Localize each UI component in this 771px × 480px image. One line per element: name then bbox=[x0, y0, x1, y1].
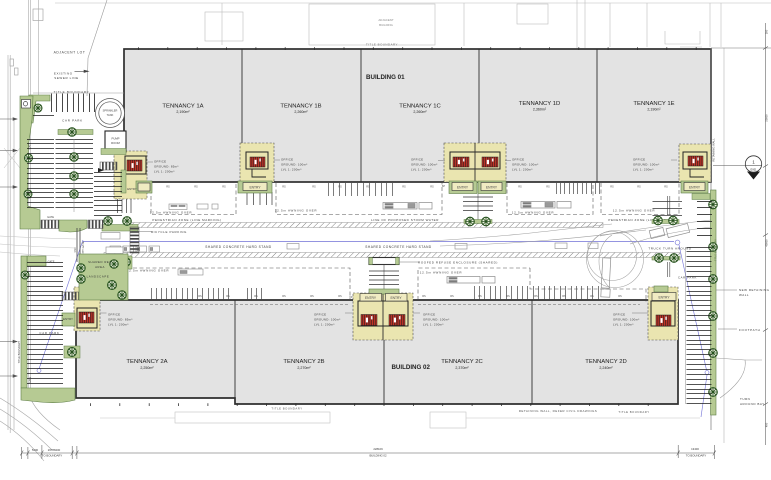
svg-text:LVL 1: 200m²: LVL 1: 200m² bbox=[154, 170, 175, 174]
svg-text:TITLE BOUNDARY: TITLE BOUNDARY bbox=[366, 43, 398, 47]
svg-text:RS: RS bbox=[282, 185, 286, 189]
svg-text:GROUND: 100m²: GROUND: 100m² bbox=[633, 163, 660, 167]
svg-text:ENTRY: ENTRY bbox=[63, 317, 73, 321]
svg-text:WALL: WALL bbox=[739, 293, 749, 297]
svg-text:RS: RS bbox=[338, 185, 342, 189]
svg-text:ADJACENT: ADJACENT bbox=[378, 18, 393, 22]
svg-text:EX01: EX01 bbox=[750, 169, 757, 172]
svg-text:GROUND: 100m²: GROUND: 100m² bbox=[411, 163, 438, 167]
svg-text:2,190m²: 2,190m² bbox=[647, 107, 661, 111]
svg-text:TO BOUNDARY: TO BOUNDARY bbox=[42, 454, 63, 458]
svg-text:ENTRY: ENTRY bbox=[390, 296, 402, 300]
svg-text:FOOTPATH: FOOTPATH bbox=[739, 328, 761, 332]
svg-text:GROUND: 100m²: GROUND: 100m² bbox=[314, 318, 341, 322]
svg-text:AREA: AREA bbox=[95, 265, 105, 269]
svg-text:OFFICE: OFFICE bbox=[108, 313, 120, 317]
svg-text:TENNANCY 1D: TENNANCY 1D bbox=[519, 101, 560, 107]
svg-text:50000: 50000 bbox=[765, 114, 769, 122]
svg-text:BUILDING 01: BUILDING 01 bbox=[366, 74, 405, 81]
svg-text:ENTRY: ENTRY bbox=[658, 296, 670, 300]
svg-text:6P: 6P bbox=[442, 184, 445, 188]
svg-text:500: 500 bbox=[765, 29, 769, 34]
svg-text:TITLE BOUNDARY: TITLE BOUNDARY bbox=[17, 341, 21, 364]
svg-text:TENNANCY 2C: TENNANCY 2C bbox=[441, 359, 483, 365]
svg-text:ENTRY: ENTRY bbox=[365, 296, 377, 300]
svg-text:RETAINING WALL, REFER CIVIL DR: RETAINING WALL, REFER CIVIL DRAWINGS bbox=[519, 409, 598, 413]
svg-text:RS: RS bbox=[222, 185, 226, 189]
svg-text:GATE: GATE bbox=[29, 376, 32, 383]
svg-text:RS: RS bbox=[664, 185, 668, 189]
svg-text:RS: RS bbox=[312, 185, 316, 189]
svg-text:PEDESTRIAN ZONE (LINE MARKING): PEDESTRIAN ZONE (LINE MARKING) bbox=[152, 218, 221, 222]
svg-text:LVL 1: 200m²: LVL 1: 200m² bbox=[281, 168, 302, 172]
svg-text:TENNANCY 1C: TENNANCY 1C bbox=[399, 103, 441, 109]
svg-text:RS: RS bbox=[450, 294, 454, 298]
svg-text:OFFICE: OFFICE bbox=[613, 313, 625, 317]
svg-text:GROUND: 85m²: GROUND: 85m² bbox=[108, 318, 133, 322]
svg-text:12.5m AWNING OVER: 12.5m AWNING OVER bbox=[613, 209, 656, 213]
svg-text:RS: RS bbox=[282, 294, 286, 298]
svg-text:TITLE BOUNDARY: TITLE BOUNDARY bbox=[54, 90, 90, 94]
svg-text:RS: RS bbox=[402, 185, 406, 189]
svg-text:TENNANCY 2D: TENNANCY 2D bbox=[585, 359, 626, 365]
svg-text:40000: 40000 bbox=[765, 239, 769, 247]
svg-text:TENNANCY 1B: TENNANCY 1B bbox=[280, 103, 321, 109]
svg-text:ENTRY: ENTRY bbox=[486, 186, 498, 190]
svg-text:RS: RS bbox=[198, 294, 202, 298]
svg-text:GROUND: 85m²: GROUND: 85m² bbox=[154, 165, 179, 169]
svg-text:CAR PARK: CAR PARK bbox=[678, 276, 697, 280]
svg-text:ROOFED REFUSE ENCLOSURE (SHARE: ROOFED REFUSE ENCLOSURE (SHARED) bbox=[418, 261, 498, 265]
svg-text:ADJACENT LOT: ADJACENT LOT bbox=[54, 51, 86, 55]
svg-text:2,260m²: 2,260m² bbox=[413, 110, 427, 114]
svg-text:OFFICE: OFFICE bbox=[423, 313, 435, 317]
svg-text:RS: RS bbox=[166, 185, 170, 189]
svg-text:RS: RS bbox=[366, 185, 370, 189]
svg-text:RS: RS bbox=[562, 294, 566, 298]
svg-text:400: 400 bbox=[765, 422, 769, 427]
svg-text:LANDSCAPE: LANDSCAPE bbox=[87, 275, 110, 279]
svg-text:RS: RS bbox=[478, 294, 482, 298]
svg-text:12.5m AWNING OVER: 12.5m AWNING OVER bbox=[150, 211, 193, 215]
svg-text:ENTRY: ENTRY bbox=[127, 187, 137, 191]
svg-text:2,260m²: 2,260m² bbox=[294, 110, 308, 114]
svg-text:RS: RS bbox=[430, 185, 434, 189]
svg-text:RS: RS bbox=[590, 294, 594, 298]
svg-text:GROUND: 100m²: GROUND: 100m² bbox=[423, 318, 450, 322]
svg-text:GROUND: 100m²: GROUND: 100m² bbox=[281, 163, 308, 167]
svg-text:RS: RS bbox=[546, 185, 550, 189]
svg-text:LVL 1: 200m²: LVL 1: 200m² bbox=[411, 168, 432, 172]
svg-text:CAR PARK: CAR PARK bbox=[39, 331, 59, 335]
svg-text:RS: RS bbox=[338, 294, 342, 298]
svg-text:LINE OF PROPOSED STORM WATER: LINE OF PROPOSED STORM WATER bbox=[371, 218, 439, 222]
svg-text:ENTRY: ENTRY bbox=[689, 186, 701, 190]
svg-text:RS: RS bbox=[610, 185, 614, 189]
svg-text:BUILDING 02: BUILDING 02 bbox=[369, 454, 387, 458]
svg-text:OFFICE: OFFICE bbox=[314, 313, 326, 317]
svg-text:EXISTING: EXISTING bbox=[54, 71, 73, 75]
svg-text:SEWER LINE: SEWER LINE bbox=[54, 76, 79, 80]
svg-text:12.5m AWNING OVER: 12.5m AWNING OVER bbox=[512, 211, 555, 215]
svg-text:12.5m AWNING OVER: 12.5m AWNING OVER bbox=[127, 269, 170, 273]
svg-text:2,190m²: 2,190m² bbox=[176, 110, 190, 114]
svg-text:TITLE BOUNDARY: TITLE BOUNDARY bbox=[618, 410, 649, 414]
svg-text:PUMP: PUMP bbox=[111, 137, 119, 141]
svg-text:TENNANCY 2A: TENNANCY 2A bbox=[126, 359, 167, 365]
svg-text:GROUND: 100m²: GROUND: 100m² bbox=[613, 318, 640, 322]
svg-text:LVL 1: 200m²: LVL 1: 200m² bbox=[512, 168, 533, 172]
svg-text:SHARED CONCRETE HARD STAND: SHARED CONCRETE HARD STAND bbox=[365, 245, 432, 249]
svg-text:OFFICE: OFFICE bbox=[281, 158, 293, 162]
svg-text:ENTRY: ENTRY bbox=[457, 186, 469, 190]
svg-text:RETAINING WALL: RETAINING WALL bbox=[712, 138, 716, 162]
svg-text:TENNANCY 1E: TENNANCY 1E bbox=[633, 101, 674, 107]
svg-text:2,240m²: 2,240m² bbox=[599, 366, 613, 370]
svg-text:OFFICE: OFFICE bbox=[411, 158, 423, 162]
svg-text:LVL 1: 200m²: LVL 1: 200m² bbox=[633, 168, 654, 172]
svg-text:BUILDING 02: BUILDING 02 bbox=[391, 364, 430, 371]
svg-text:GROUND: 100m²: GROUND: 100m² bbox=[512, 163, 539, 167]
svg-text:SHARED CONCRETE HARD STAND: SHARED CONCRETE HARD STAND bbox=[205, 245, 272, 249]
svg-text:2,370m²: 2,370m² bbox=[455, 366, 469, 370]
svg-text:GATE: GATE bbox=[47, 215, 54, 219]
svg-text:RS: RS bbox=[518, 185, 522, 189]
svg-text:LVL 1: 200m²: LVL 1: 200m² bbox=[314, 323, 335, 327]
svg-text:12.5m AWNING OVER: 12.5m AWNING OVER bbox=[420, 271, 463, 275]
svg-text:2,250m²: 2,250m² bbox=[140, 366, 154, 370]
svg-text:SHARED REC: SHARED REC bbox=[88, 260, 112, 264]
svg-text:ROOM: ROOM bbox=[111, 141, 120, 145]
svg-text:228109: 228109 bbox=[373, 447, 383, 451]
svg-text:TITLE BOUNDARY: TITLE BOUNDARY bbox=[715, 239, 718, 261]
svg-text:12.5m AWNING OVER: 12.5m AWNING OVER bbox=[275, 209, 318, 213]
svg-text:ENTRY: ENTRY bbox=[249, 186, 261, 190]
svg-text:TITLE BOUNDARY: TITLE BOUNDARY bbox=[271, 407, 302, 411]
svg-text:NEW RETAINING: NEW RETAINING bbox=[739, 288, 770, 292]
svg-text:SPRINKLER: SPRINKLER bbox=[103, 109, 118, 113]
svg-text:26788400: 26788400 bbox=[48, 448, 61, 452]
svg-text:TO BOUNDARY: TO BOUNDARY bbox=[686, 454, 707, 458]
svg-text:RS: RS bbox=[226, 294, 230, 298]
svg-text:OFFICE: OFFICE bbox=[154, 160, 166, 164]
svg-text:OFFICE: OFFICE bbox=[512, 158, 524, 162]
svg-text:OFFICE: OFFICE bbox=[633, 158, 645, 162]
svg-text:RS: RS bbox=[422, 294, 426, 298]
svg-text:BUILDING: BUILDING bbox=[379, 23, 393, 27]
svg-text:TENNANCY 1A: TENNANCY 1A bbox=[162, 103, 203, 109]
svg-text:5400: 5400 bbox=[32, 448, 39, 452]
svg-text:RS: RS bbox=[194, 185, 198, 189]
svg-text:13400: 13400 bbox=[691, 447, 699, 451]
svg-text:TANK: TANK bbox=[107, 113, 114, 117]
svg-text:2,360m²: 2,360m² bbox=[533, 107, 547, 111]
svg-text:RS: RS bbox=[534, 294, 538, 298]
svg-text:BICYCLE PARKING: BICYCLE PARKING bbox=[151, 230, 187, 234]
svg-text:LVL 1: 200m²: LVL 1: 200m² bbox=[423, 323, 444, 327]
svg-text:2,270m²: 2,270m² bbox=[297, 366, 311, 370]
svg-text:AROUND BAY: AROUND BAY bbox=[740, 402, 765, 406]
svg-text:RS: RS bbox=[506, 294, 510, 298]
svg-text:LVL 1: 200m²: LVL 1: 200m² bbox=[613, 323, 634, 327]
svg-text:RS: RS bbox=[637, 185, 641, 189]
svg-text:RS: RS bbox=[254, 294, 258, 298]
svg-text:TENNANCY 2B: TENNANCY 2B bbox=[283, 359, 324, 365]
svg-text:CAR PARK: CAR PARK bbox=[62, 119, 83, 123]
svg-text:6P: 6P bbox=[349, 295, 352, 299]
svg-text:TURN: TURN bbox=[740, 397, 750, 401]
svg-text:RS: RS bbox=[618, 294, 622, 298]
svg-text:LVL 1: 200m²: LVL 1: 200m² bbox=[108, 323, 129, 327]
svg-text:RS: RS bbox=[310, 294, 314, 298]
